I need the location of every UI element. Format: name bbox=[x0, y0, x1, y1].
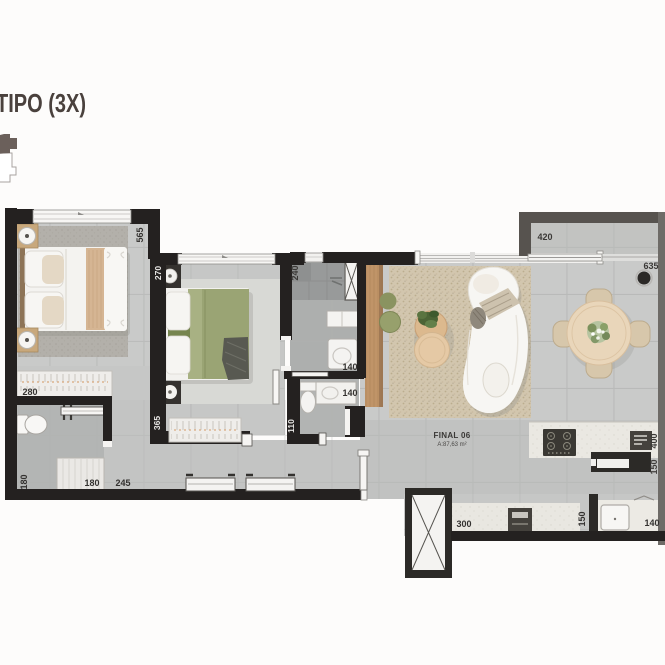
svg-text:140: 140 bbox=[342, 388, 357, 398]
svg-text:280: 280 bbox=[22, 387, 37, 397]
svg-text:180: 180 bbox=[19, 474, 29, 489]
svg-text:140: 140 bbox=[644, 518, 659, 528]
svg-text:365: 365 bbox=[152, 416, 162, 430]
svg-text:270: 270 bbox=[153, 266, 163, 280]
svg-text:400: 400 bbox=[649, 433, 659, 448]
svg-text:635: 635 bbox=[643, 261, 658, 271]
svg-text:420: 420 bbox=[537, 232, 552, 242]
svg-text:245: 245 bbox=[115, 478, 130, 488]
svg-text:565: 565 bbox=[135, 227, 145, 242]
svg-text:FINAL 06: FINAL 06 bbox=[434, 431, 471, 440]
svg-text:150: 150 bbox=[649, 459, 659, 474]
svg-text:110: 110 bbox=[286, 419, 296, 433]
svg-text:150: 150 bbox=[577, 511, 587, 526]
svg-text:240: 240 bbox=[290, 265, 300, 280]
svg-text:140: 140 bbox=[342, 362, 357, 372]
svg-text:A:87,63 m²: A:87,63 m² bbox=[437, 442, 466, 448]
svg-text:180: 180 bbox=[84, 478, 99, 488]
svg-text:300: 300 bbox=[456, 519, 471, 529]
svg-text:TIPO (3X): TIPO (3X) bbox=[0, 88, 86, 118]
